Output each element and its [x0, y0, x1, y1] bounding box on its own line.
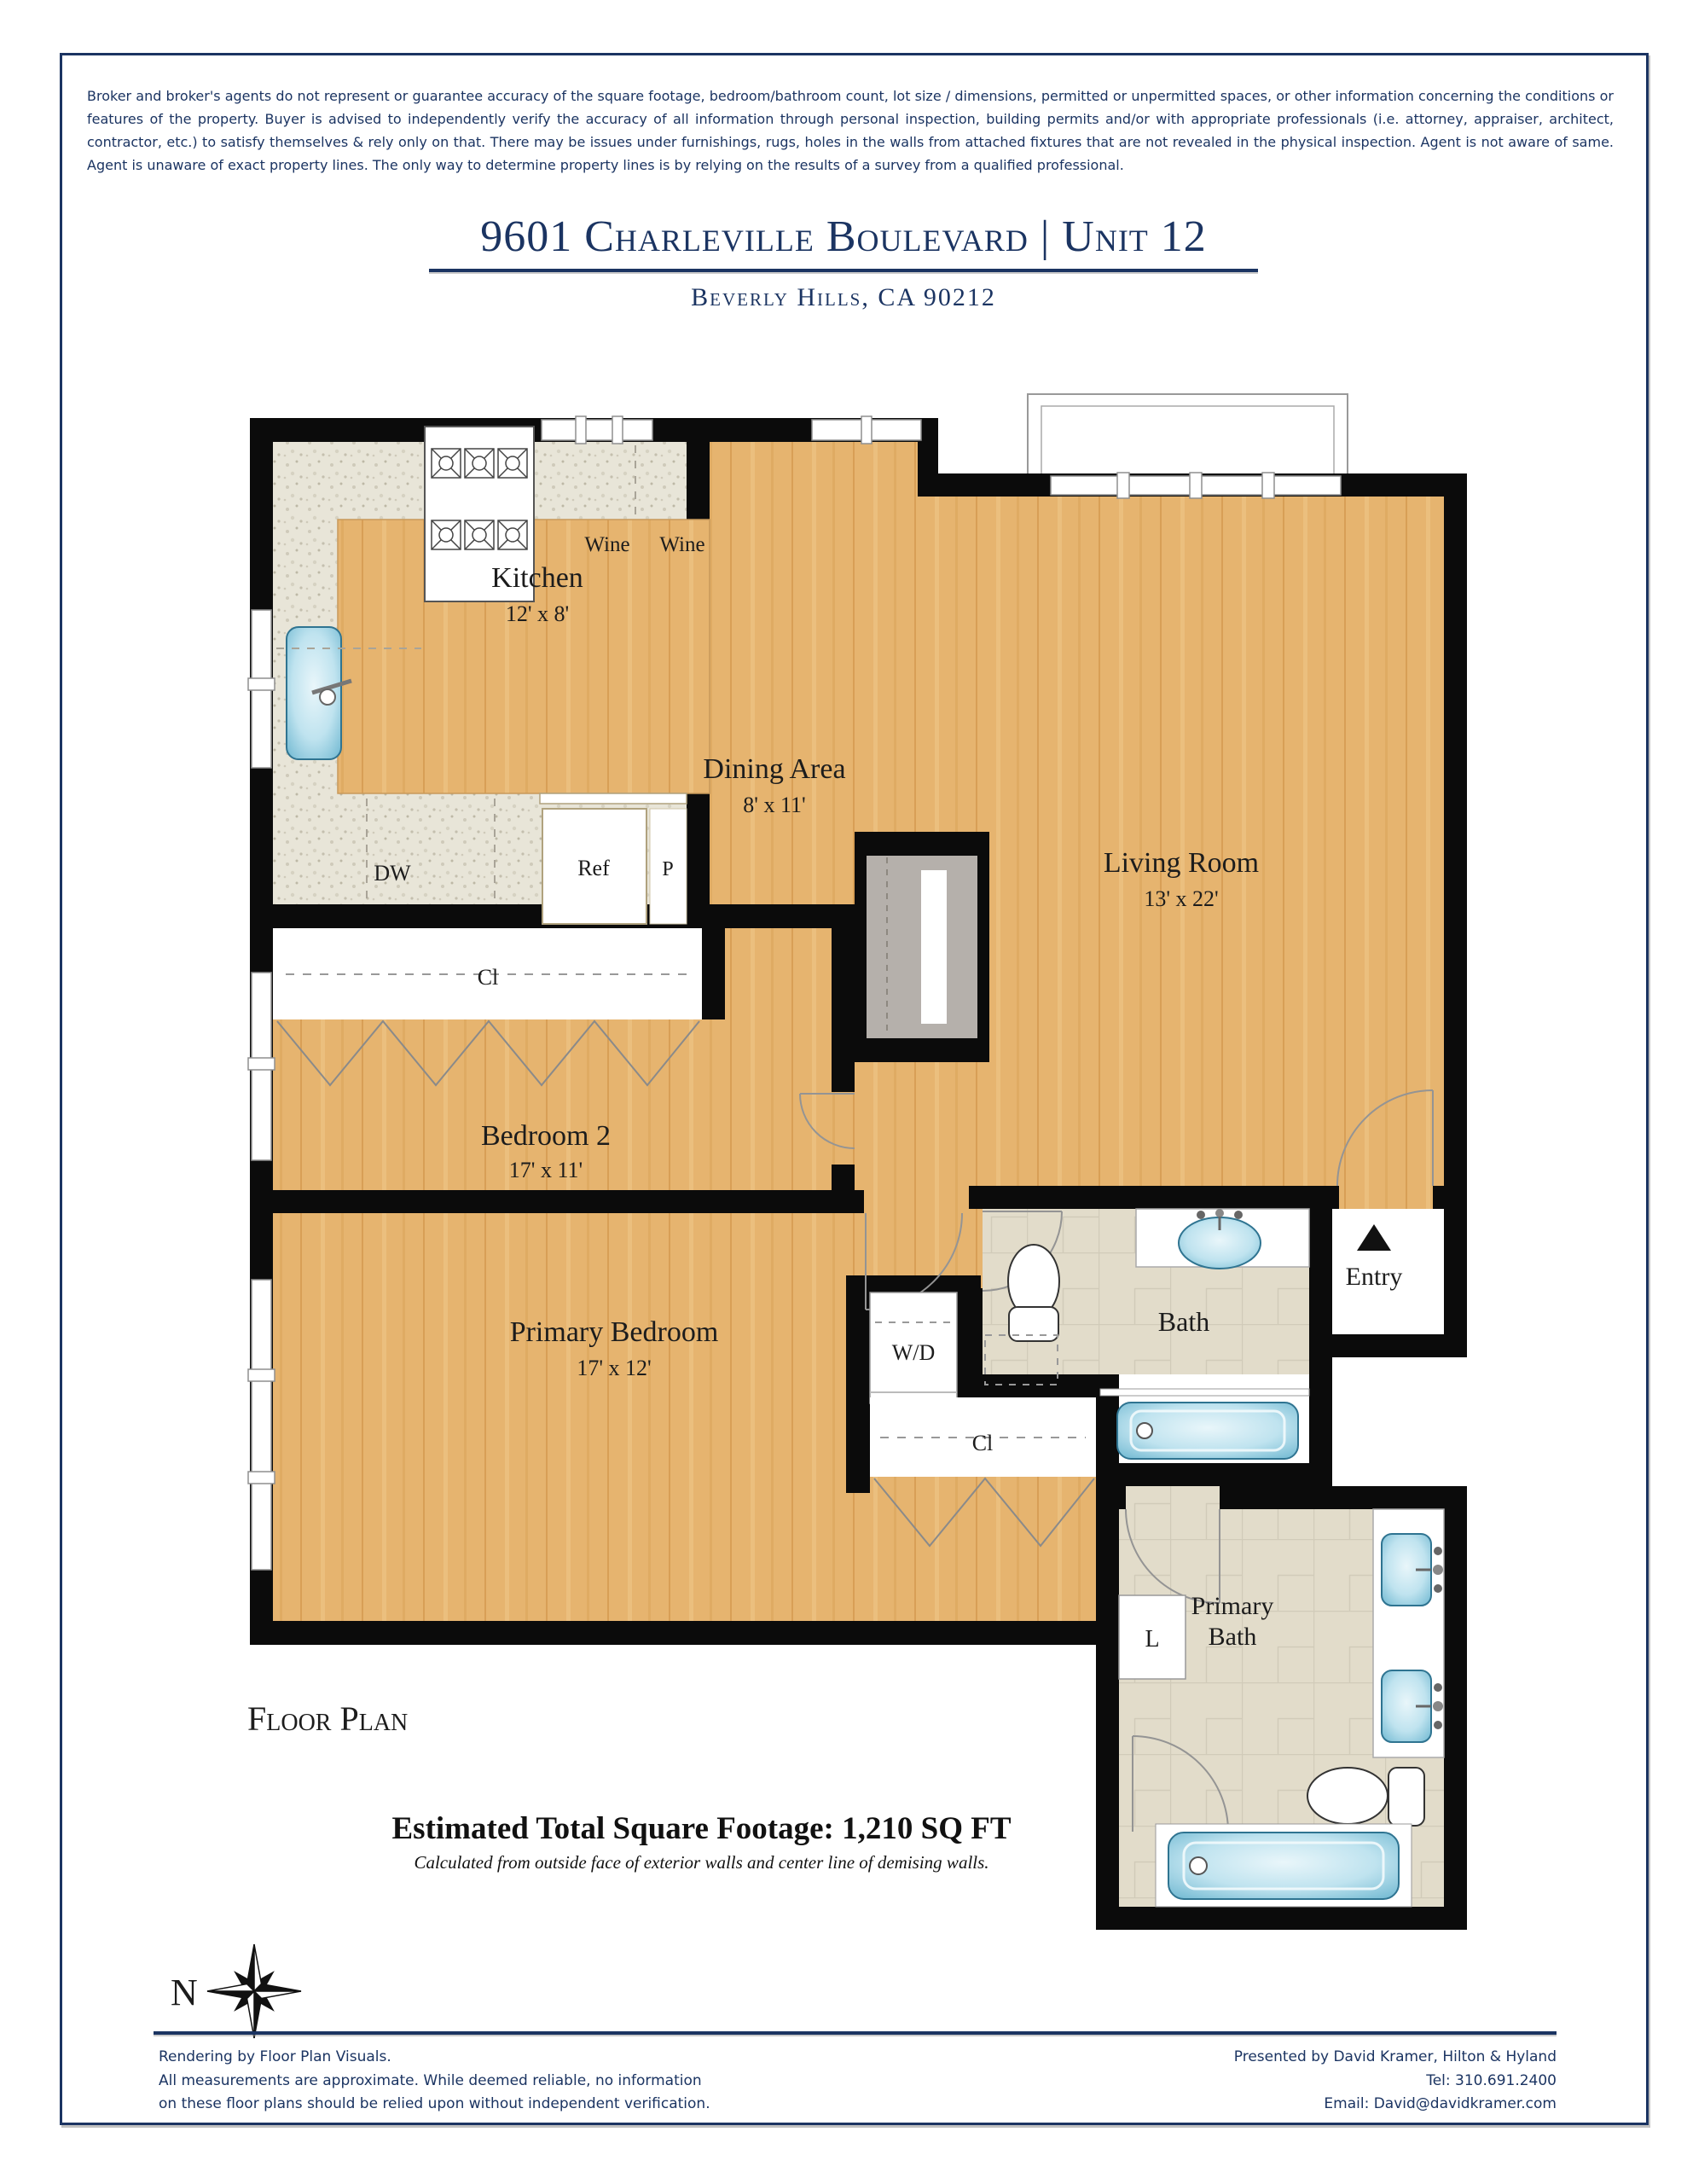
- primary-bath-label-line2: Bath: [1209, 1623, 1257, 1651]
- disclaimer-text: Broker and broker's agents do not repres…: [87, 85, 1614, 177]
- dishwasher-label: DW: [374, 861, 411, 886]
- floor-plan: Kitchen 12' x 8' Wine Wine Dining Area 8…: [239, 392, 1467, 1937]
- footer-right-line3: Email: David@davidkramer.com: [1234, 2093, 1557, 2117]
- balcony: [1028, 394, 1348, 479]
- wine-left-label: Wine: [584, 533, 629, 556]
- primary-bedroom-label: Primary Bedroom: [510, 1316, 719, 1348]
- footer-left: Rendering by Floor Plan Visuals. All mea…: [159, 2046, 710, 2117]
- living-label: Living Room: [1104, 847, 1259, 879]
- primary-bath-label-line1: Primary: [1191, 1592, 1274, 1620]
- floor-plan-label: Floor Plan: [247, 1699, 408, 1738]
- square-footage-line: Estimated Total Square Footage: 1,210 SQ…: [230, 1810, 1173, 1847]
- window-bedroom2-left: [248, 973, 275, 1160]
- primary-bedroom-dims: 17' x 12': [577, 1356, 651, 1380]
- living-dims: 13' x 22': [1144, 886, 1218, 911]
- square-footage: Estimated Total Square Footage: 1,210 SQ…: [230, 1810, 1173, 1873]
- bath-vanity: [1136, 1209, 1309, 1269]
- footer-left-line3: on these floor plans should be relied up…: [159, 2093, 710, 2117]
- dining-dims: 8' x 11': [743, 793, 805, 817]
- page-title: 9601 Charleville Boulevard | Unit 12: [429, 212, 1258, 272]
- primary-tub-icon: [1156, 1824, 1412, 1907]
- refrigerator-label: Ref: [577, 856, 610, 880]
- page: { "page": { "disclaimer": "Broker and br…: [0, 0, 1687, 2184]
- footer-divider: [154, 2031, 1557, 2035]
- footer-left-line1: Rendering by Floor Plan Visuals.: [159, 2046, 710, 2070]
- footer-right: Presented by David Kramer, Hilton & Hyla…: [1234, 2046, 1557, 2117]
- window-dining-top: [812, 416, 921, 444]
- wine-right-label: Wine: [659, 533, 704, 556]
- bedroom2-dims: 17' x 11': [509, 1158, 583, 1182]
- entry-label: Entry: [1346, 1263, 1403, 1291]
- primary-toilet-icon: [1307, 1768, 1424, 1826]
- footer-right-line2: Tel: 310.691.2400: [1234, 2070, 1557, 2094]
- kitchen-label: Kitchen: [491, 562, 583, 594]
- bedroom2-label: Bedroom 2: [481, 1120, 611, 1152]
- bath-toilet-icon: [1008, 1245, 1059, 1341]
- compass-star-icon: [207, 1944, 301, 2038]
- linen-label: L: [1145, 1626, 1159, 1653]
- window-living-top: [1051, 473, 1341, 498]
- washer-dryer-label: W/D: [892, 1340, 936, 1365]
- compass-north-label: N: [171, 1972, 198, 2013]
- footer-left-line2: All measurements are approximate. While …: [159, 2070, 710, 2094]
- utility-shaft: [855, 832, 989, 1062]
- square-footage-note: Calculated from outside face of exterior…: [230, 1852, 1173, 1873]
- header: 9601 Charleville Boulevard | Unit 12: [0, 212, 1687, 272]
- kitchen-dims: 12' x 8': [506, 601, 569, 626]
- footer-right-line1: Presented by David Kramer, Hilton & Hyla…: [1234, 2046, 1557, 2070]
- pantry-label: P: [662, 858, 673, 880]
- closet-bedroom2-label: Cl: [478, 965, 499, 990]
- kitchen-sink-icon: [287, 627, 351, 759]
- window-kitchen-top: [542, 416, 652, 444]
- closet-primary-label: Cl: [972, 1431, 994, 1455]
- window-kitchen-left: [248, 610, 275, 768]
- dining-label: Dining Area: [703, 753, 845, 785]
- window-primary-left: [248, 1280, 275, 1570]
- bath-label: Bath: [1158, 1306, 1209, 1337]
- primary-bath-vanity: [1373, 1509, 1444, 1757]
- page-subtitle: Beverly Hills, CA 90212: [0, 283, 1687, 312]
- floor-plan-drawing: Kitchen 12' x 8' Wine Wine Dining Area 8…: [239, 392, 1467, 1937]
